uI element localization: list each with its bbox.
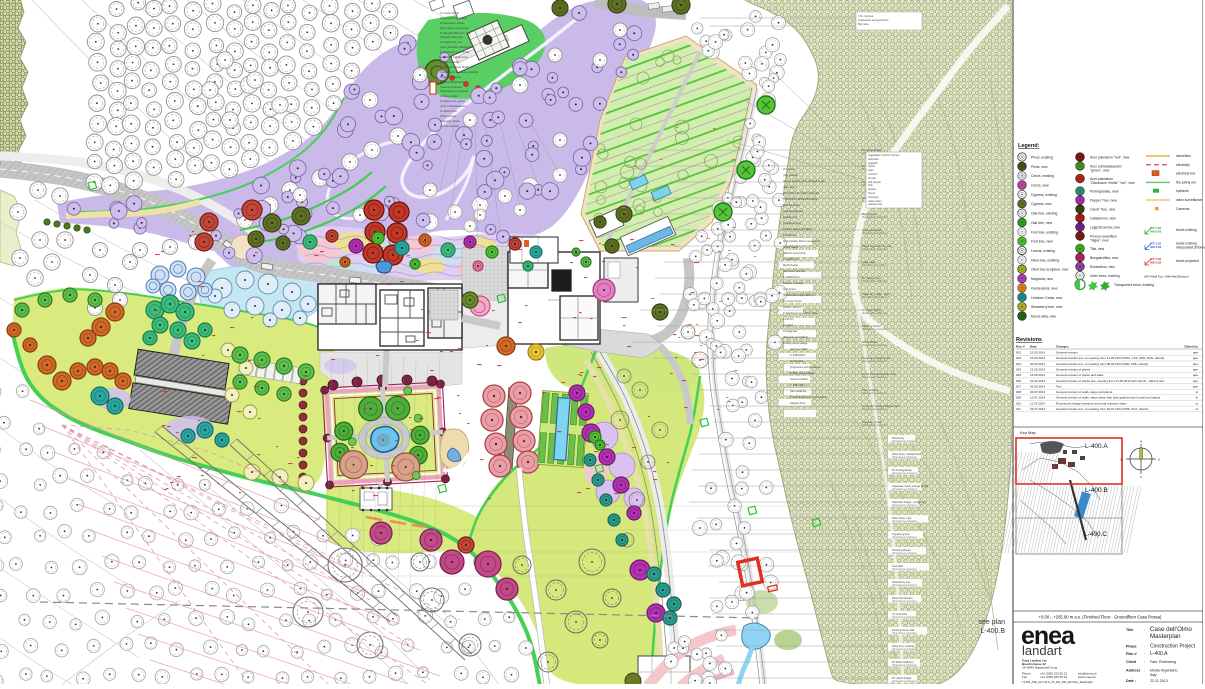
svg-text:(Myrtus communis): (Myrtus communis): [783, 269, 805, 273]
svg-text:General revision of walls, ste: General revision of walls, steps and pla…: [1056, 390, 1113, 394]
svg-text:(Rosmarinus prostratus): (Rosmarinus prostratus): [892, 472, 917, 475]
svg-text:ape: ape: [1193, 379, 1198, 383]
svg-text:electric position to be decide: electric position to be decided or site: [783, 179, 826, 183]
svg-text:3x Cypress: 3x Cypress: [790, 359, 804, 363]
svg-text:Cypress group: Cypress group: [892, 532, 910, 536]
svg-text:General revision acc. to meeti: General revision acc. to meeting from 08…: [1056, 362, 1148, 366]
svg-text::: :: [1144, 645, 1145, 649]
svg-text:(Rosmarinus prostratus): (Rosmarinus prostratus): [892, 632, 917, 635]
svg-text:12.07.2014: 12.07.2014: [1030, 396, 1045, 400]
svg-text:Carob Tree, new: Carob Tree, new: [1090, 208, 1116, 212]
svg-text::: :: [1144, 669, 1145, 673]
svg-text:4x Cork Oak: 4x Cork Oak: [892, 612, 908, 616]
svg-text:General revision acc. to meeti: General revision acc. to meeting from 20…: [1056, 407, 1148, 411]
svg-text:parsley: parsley: [868, 187, 877, 191]
svg-text:h: 460/100cm: h: 460/100cm: [790, 383, 806, 387]
svg-text:(Rosmarinus prostratus): (Rosmarinus prostratus): [892, 616, 917, 619]
svg-text:Hachiya Grape perinated: Hachiya Grape perinated: [783, 227, 812, 231]
svg-text:General revision of plants: General revision of plants: [1056, 367, 1091, 371]
svg-text:Tilia, new: Tilia, new: [1090, 247, 1105, 251]
svg-text:Complement of existing plantin: Complement of existing planting:: [440, 70, 479, 74]
svg-text:L-400.A: L-400.A: [1150, 651, 1168, 657]
svg-text:Myrtle hedge: Myrtle hedge: [783, 263, 799, 267]
svg-text:Acer palmatum "red", new: Acer palmatum "red", new: [1090, 156, 1130, 160]
svg-text:Olive trees, new: Olive trees, new: [892, 516, 911, 520]
svg-text:007: 007: [1016, 384, 1021, 388]
svg-text:Enkianthus, new: Enkianthus, new: [1090, 265, 1115, 269]
svg-text:(Acer palmatum dissectum): (Acer palmatum dissectum): [440, 45, 473, 49]
svg-text:electrical box: electrical box: [1176, 172, 1196, 176]
svg-text:Oak tree, existing: Oak tree, existing: [1031, 212, 1057, 216]
svg-text:Pistacia angustifolium: Pistacia angustifolium: [440, 80, 467, 84]
svg-text:h: 100/120 cm: h: 100/120 cm: [783, 275, 799, 279]
svg-text:008: 008: [1016, 390, 1021, 394]
svg-text:(Rosmarinus prostratus): (Rosmarinus prostratus): [892, 680, 917, 683]
svg-text:a 120 cm: a 120 cm: [783, 317, 794, 321]
svg-text:Magnolia, new: Magnolia, new: [1031, 277, 1053, 281]
svg-text:General revision acc. to meeti: General revision acc. to meeting from 14…: [1056, 356, 1164, 360]
svg-text:Lebanon Cedar, new: Lebanon Cedar, new: [1031, 296, 1063, 300]
svg-text:in Sandstone pot with ornamen: in Sandstone pot with ornamen: [783, 311, 819, 315]
svg-text:electricity: electricity: [1176, 163, 1190, 167]
svg-text:WB 0.82: WB 0.82: [1150, 261, 1162, 265]
svg-text:Edited by: Edited by: [1184, 345, 1198, 349]
svg-text:(Rosmarinus prostratus): (Rosmarinus prostratus): [892, 648, 917, 651]
svg-text:W: W: [1120, 458, 1123, 462]
svg-text:5x Bay Laurel Hedge: 5x Bay Laurel Hedge: [790, 371, 815, 375]
svg-text:15.03.2014: 15.03.2014: [1030, 351, 1045, 355]
svg-text:in sandstone pots 60x60: in sandstone pots 60x60: [440, 65, 470, 69]
svg-text:(Rosmarinus prostratus): (Rosmarinus prostratus): [862, 296, 887, 299]
svg-text:Legend:: Legend:: [1018, 143, 1040, 149]
svg-text:Hachiya grape: Hachiya grape: [783, 203, 800, 207]
svg-text:see plan: see plan: [979, 619, 1006, 626]
svg-text:h: 460/100cm: h: 460/100cm: [790, 353, 806, 357]
svg-text:fennel: fennel: [868, 164, 875, 168]
svg-text:2x Zucchini on bamboo pergola: 2x Zucchini on bamboo pergola: [783, 191, 820, 195]
svg-text:levels projected: levels projected: [1176, 259, 1199, 263]
svg-text:interpolated (informative): interpolated (informative): [1176, 245, 1205, 249]
svg-text::: :: [1144, 652, 1145, 656]
svg-text:3x Cypress: 3x Cypress: [783, 287, 797, 291]
svg-text:22.11.2013: 22.11.2013: [1150, 679, 1168, 683]
svg-text:(Rosmarinus prostratus): (Rosmarinus prostratus): [892, 664, 917, 667]
svg-text:passion fruit: passion fruit: [868, 202, 882, 206]
svg-text:06.07.2014: 06.07.2014: [1030, 390, 1045, 394]
svg-text:15.06.2014: 15.06.2014: [1030, 373, 1045, 377]
svg-text:003: 003: [1016, 362, 1021, 366]
svg-text:Title: Title: [1126, 628, 1133, 632]
svg-text:Olive tree, existing: Olive tree, existing: [1031, 258, 1059, 262]
svg-text:tomato: tomato: [868, 176, 876, 180]
svg-text:Perennial flowers: Perennial flowers: [862, 228, 883, 232]
svg-text:ape: ape: [1193, 384, 1198, 388]
svg-text:Hapless Fruit: Hapless Fruit: [790, 401, 806, 405]
svg-text:(Rosmarinus prostratus): (Rosmarinus prostratus): [862, 376, 887, 379]
svg-text:(Rosmarinus prostratus): (Rosmarinus prostratus): [862, 392, 887, 395]
svg-text:Pomegranate, new: Pomegranate, new: [1090, 190, 1119, 194]
svg-text:Date: Date: [1030, 345, 1037, 349]
svg-text:Transported trees, existing: Transported trees, existing: [1114, 283, 1154, 287]
svg-text:Pinus, new: Pinus, new: [1031, 165, 1048, 169]
svg-text:(Citrus sinensis): (Citrus sinensis): [440, 60, 459, 64]
svg-text:General revision of walls, ste: General revision of walls, steps (aera v…: [1056, 396, 1161, 400]
svg-text:23.07.2014: 23.07.2014: [1030, 407, 1045, 411]
svg-text:Phase: Phase: [1126, 645, 1137, 649]
svg-text:N: N: [1140, 440, 1142, 444]
svg-text:h: 160/120 cm: h: 160/120 cm: [783, 257, 799, 261]
svg-text:Pistacia lentiscus: Pistacia lentiscus: [440, 75, 461, 79]
svg-text:L-400.B: L-400.B: [980, 628, 1005, 635]
svg-text:(Rosmarinus prostratus): (Rosmarinus prostratus): [862, 312, 887, 315]
svg-text:WB 0.82: WB 0.82: [1150, 245, 1162, 249]
svg-text:Olive trees, transplanted: Olive trees, transplanted: [892, 452, 922, 456]
svg-text:Bougainvillea, new: Bougainvillea, new: [1090, 256, 1119, 260]
svg-text:5x Crape Myrtle: 5x Crape Myrtle: [862, 308, 881, 312]
svg-text:(Rosmarinus prostratus): (Rosmarinus prostratus): [862, 216, 887, 219]
svg-text:26.06.2014: 26.06.2014: [1030, 384, 1045, 388]
svg-text:ape: ape: [1193, 356, 1198, 360]
svg-text:011: 011: [1016, 407, 1021, 411]
svg-text:(Vitis lanuginosa): (Vitis lanuginosa): [783, 209, 803, 213]
svg-text:4x Lemon Trees: 4x Lemon Trees: [783, 299, 802, 303]
svg-text:(Laurus nobilis): (Laurus nobilis): [790, 347, 808, 351]
svg-text:Pinus, existing: Pinus, existing: [1031, 156, 1053, 160]
svg-text:002: 002: [1016, 356, 1021, 360]
svg-text:(Citrus x limon): (Citrus x limon): [783, 305, 801, 309]
svg-text:Oak tree, new: Oak tree, new: [1031, 221, 1053, 225]
svg-text:Morris hedge: Morris hedge: [783, 245, 799, 249]
svg-text:(Passiflora spp): (Passiflora spp): [783, 221, 801, 225]
svg-text:0.60x2.60m, about 240 height: 0.60x2.60m, about 240 height: [783, 197, 818, 201]
svg-text:water layer: water layer: [783, 185, 796, 189]
svg-text:Wisteria Tunnel: Wisteria Tunnel: [862, 324, 881, 328]
svg-text:chili: chili: [868, 183, 873, 187]
svg-text:Arbutus unedo: Arbutus unedo: [440, 94, 458, 98]
svg-text:hydrants: hydrants: [1176, 189, 1189, 193]
svg-text:2x Maple tree, red: 2x Maple tree, red: [440, 40, 462, 44]
svg-text:4x Crape Myrtle: 4x Crape Myrtle: [440, 11, 459, 15]
svg-text:4x Rosemary stands: 4x Rosemary stands: [440, 21, 465, 25]
svg-text:"Dissectum Viridis" "red", new: "Dissectum Viridis" "red", new: [1090, 181, 1135, 185]
svg-text:(Lagerstroemia indica): (Lagerstroemia indica): [440, 16, 467, 20]
svg-text:Callistemon, new: Callistemon, new: [1090, 217, 1116, 221]
svg-text:Shrub Roses: Shrub Roses: [862, 340, 878, 344]
svg-text:5x White Mulberry: 5x White Mulberry: [892, 660, 914, 664]
svg-text:st: st: [1196, 390, 1199, 394]
svg-text:(Rosmarinus prostratus): (Rosmarinus prostratus): [892, 440, 917, 443]
svg-text:(Cupressus sempervirens): (Cupressus sempervirens): [790, 365, 821, 369]
svg-text:L-400.A: L-400.A: [1085, 443, 1108, 450]
svg-text:5x Laurel hedge: 5x Laurel hedge: [862, 148, 882, 152]
svg-text:21.03.2014: 21.03.2014: [1030, 356, 1045, 360]
svg-text:Climbing Roses: Climbing Roses: [892, 548, 911, 552]
svg-text:rosemary: rosemary: [868, 195, 880, 199]
svg-text:5x Bay Laurel Hedge: 5x Bay Laurel Hedge: [783, 341, 808, 345]
svg-text:other trees, existing: other trees, existing: [1090, 274, 1120, 278]
svg-text:separated orange trees: separated orange trees: [440, 55, 468, 59]
svg-text:basil: basil: [868, 168, 874, 172]
svg-text:6x Bougainvillea mix, red: 6x Bougainvillea mix, red: [440, 31, 470, 35]
svg-text:(Rosmarinus prostratus): (Rosmarinus prostratus): [892, 504, 917, 507]
svg-text:Masterplan: Masterplan: [1150, 633, 1181, 640]
svg-text:st: st: [1196, 396, 1199, 400]
svg-text:(Pinus pinea): (Pinus pinea): [440, 114, 456, 118]
svg-text:Cypress, new: Cypress, new: [1031, 202, 1052, 206]
svg-text:Fax: Fax: [1022, 675, 1028, 679]
svg-text:2x old Peruvian Pepper Tree: 2x old Peruvian Pepper Tree: [862, 372, 897, 376]
svg-text:Fruit tree, new: Fruit tree, new: [1031, 240, 1053, 244]
svg-text:Changes: Changes: [1056, 345, 1069, 349]
svg-text:(Rosmarinus prostratus): (Rosmarinus prostratus): [862, 280, 887, 283]
svg-text:Lavender: Lavender: [892, 564, 903, 568]
svg-text:(Rosmarinus prostratus): (Rosmarinus prostratus): [862, 264, 887, 267]
svg-text:(Rosmarinus prostratus): (Rosmarinus prostratus): [892, 584, 917, 587]
svg-text:Date :: Date :: [1126, 679, 1136, 683]
svg-text:(Rosmarinus prostratus): (Rosmarinus prostratus): [862, 328, 887, 331]
svg-text:artichoke: artichoke: [868, 157, 879, 161]
svg-text:Cypress, existing: Cypress, existing: [1031, 193, 1057, 197]
svg-text:General revision of plants and: General revision of plants and walls: [1056, 373, 1104, 377]
svg-text:levels existing: levels existing: [1176, 228, 1197, 232]
svg-text:Pots, existing: Pots, existing: [862, 388, 878, 392]
svg-text:Revisions: Revisions: [1016, 337, 1042, 343]
svg-text:WB 0.82: WB 0.82: [1150, 230, 1162, 234]
svg-text:L-400.B: L-400.B: [1085, 487, 1108, 494]
svg-text:(Rosmarinus prostratus): (Rosmarinus prostratus): [862, 248, 887, 251]
svg-text:Japanese mock-orange hedge: Japanese mock-orange hedge: [892, 484, 929, 488]
svg-text:(Rosmarinus prostratus): (Rosmarinus prostratus): [440, 26, 469, 30]
svg-text:Cercis, new: Cercis, new: [1031, 184, 1049, 188]
svg-text:"Nigra", new: "Nigra", new: [1090, 238, 1109, 242]
svg-text:Cameras: Cameras: [1176, 207, 1190, 211]
svg-text:11.07.2014: 11.07.2014: [1030, 401, 1045, 405]
svg-text:Existing stone wall: Existing stone wall: [892, 628, 915, 632]
svg-text:4x Magnolia: 4x Magnolia: [783, 329, 798, 333]
svg-text:in sandstone pots 60x60: in sandstone pots 60x60: [440, 50, 470, 54]
svg-text:009: 009: [1016, 396, 1021, 400]
svg-text:Text: Text: [1056, 384, 1062, 388]
svg-text:"green", new: "green", new: [1090, 168, 1110, 172]
svg-text:Laurus, existing: Laurus, existing: [1031, 249, 1055, 253]
svg-text:Olive tree sculpture, new: Olive tree sculpture, new: [1031, 268, 1069, 272]
svg-text:Pepper Tree, new: Pepper Tree, new: [1090, 199, 1117, 203]
svg-text:Key Map: Key Map: [1020, 430, 1037, 435]
svg-text:(Rosmarinus prostratus): (Rosmarinus prostratus): [892, 520, 917, 523]
svg-text:005: 005: [1016, 373, 1021, 377]
svg-text:(Acer schirasawanum): (Acer schirasawanum): [440, 104, 467, 108]
svg-text:demolition: demolition: [1176, 154, 1191, 158]
svg-text:Construction Project: Construction Project: [1150, 644, 1196, 650]
svg-text::: :: [1144, 660, 1145, 664]
svg-text:Strawberry tree: Strawberry tree: [892, 580, 911, 584]
svg-text:Roomwork change entrance area: Roomwork change entrance area and entran…: [1056, 401, 1127, 405]
svg-text:E: E: [1158, 458, 1160, 462]
svg-text:Pergola - portego: Pergola - portego: [783, 281, 804, 285]
svg-text:Fruit tree, existing: Fruit tree, existing: [1031, 230, 1058, 234]
svg-text:Oleander - bush: Oleander - bush: [862, 420, 882, 424]
svg-text:Rosemary: Rosemary: [892, 436, 905, 440]
svg-text:+41 (0)55 225 55 13: +41 (0)55 225 55 13: [1040, 675, 1067, 679]
svg-text:(Vitis beriata, Album canescen: (Vitis beriata, Album canescens): [783, 239, 820, 243]
svg-text:(Rosmarinus prostratus): (Rosmarinus prostratus): [892, 536, 917, 539]
svg-text:(Rosmarinus prostratus): (Rosmarinus prostratus): [892, 456, 917, 459]
svg-text:Italy: Italy: [1150, 673, 1157, 677]
svg-text:21.05.2014: 21.05.2014: [1030, 367, 1045, 371]
svg-text:06.04.2014: 06.04.2014: [1030, 362, 1045, 366]
svg-text:Teucrium fruticans: Teucrium fruticans: [440, 85, 462, 89]
svg-text:4x grand: 4x grand: [783, 323, 794, 327]
svg-text:01.06.2014: 01.06.2014: [1030, 379, 1045, 383]
svg-text:Nan Gardenia: Nan Gardenia: [790, 389, 807, 393]
svg-text::: :: [1144, 628, 1145, 632]
svg-text:(WT=Wall Top / WB=Wall Bottom): (WT=Wall Top / WB=Wall Bottom): [1144, 275, 1189, 279]
svg-text:L-400.C: L-400.C: [1084, 531, 1107, 538]
svg-text:Morus alba, new: Morus alba, new: [1031, 314, 1056, 318]
svg-text:(Liriope spicata): (Liriope spicata): [440, 124, 459, 128]
svg-text:Heping Fruit: Heping Fruit: [862, 212, 877, 216]
svg-text:(Rosmarinus prostratus): (Rosmarinus prostratus): [892, 568, 917, 571]
svg-text:ape: ape: [1193, 351, 1198, 355]
svg-text:(Morrius communis): (Morrius communis): [783, 251, 806, 255]
svg-text:(Rosmarinus prostratus): (Rosmarinus prostratus): [862, 408, 887, 411]
svg-text:+0.00↔+265.00 m.a.s. (Finished: +0.00↔+265.00 m.a.s. (Finished Floor - G…: [1039, 615, 1162, 620]
svg-text:4x Maple tree, green: 4x Maple tree, green: [440, 99, 465, 103]
svg-text:ape: ape: [1193, 362, 1198, 366]
svg-text:5x Pomegranate: 5x Pomegranate: [892, 468, 912, 472]
svg-text:2x Loquat: 2x Loquat: [783, 167, 795, 171]
svg-text:(Rosmarinus prostratus): (Rosmarinus prostratus): [862, 424, 887, 427]
svg-text:Rosemary hanging wall: Rosemary hanging wall: [862, 356, 890, 360]
svg-text:Koelreuteria, new: Koelreuteria, new: [1031, 286, 1058, 290]
svg-text:fire safety net: fire safety net: [1176, 180, 1196, 184]
svg-text:www.enea.ch: www.enea.ch: [1078, 675, 1096, 679]
svg-text:S: S: [1140, 475, 1142, 479]
svg-text:73-400_ASE_04.A.02.A_XX_001_40: 73-400_ASE_04.A.02.A_XX_001_400_dell-Olm…: [1022, 680, 1093, 684]
svg-text:ape: ape: [1193, 373, 1198, 377]
svg-text:(Rosmarinus prostratus): (Rosmarinus prostratus): [862, 344, 887, 347]
svg-text:Rhaphiolepis umbellata: Rhaphiolepis umbellata: [440, 89, 468, 93]
svg-text:Hawaii Fruit: Hawaii Fruit: [783, 215, 797, 219]
svg-text:Address: Address: [1126, 669, 1140, 673]
svg-text:(Rosmarinus prostratus): (Rosmarinus prostratus): [892, 552, 917, 555]
svg-text:Perennial flowers: Perennial flowers: [892, 596, 913, 600]
svg-text:5x Laurel hedge: 5x Laurel hedge: [892, 676, 912, 680]
svg-text:Fam. Rotenberg: Fam. Rotenberg: [1150, 660, 1176, 664]
svg-text:with Album: with Album: [783, 233, 796, 237]
svg-text:Lagerstroemia, new: Lagerstroemia, new: [1090, 226, 1120, 230]
svg-text:Strawberry tree, new: Strawberry tree, new: [1031, 305, 1063, 309]
svg-text:Cercis, existing: Cercis, existing: [1031, 174, 1054, 178]
svg-text:Water layer with city wall: Water layer with city wall: [862, 244, 892, 248]
svg-text:Rev. #: Rev. #: [1016, 345, 1025, 349]
svg-text:(Cupressus sempervirens): (Cupressus sempervirens): [858, 18, 889, 22]
svg-text:st: st: [1196, 407, 1199, 411]
svg-text:5x Orange Tree: 5x Orange Tree: [862, 276, 881, 280]
svg-text:(Rosmarinus prostratus): (Rosmarinus prostratus): [892, 488, 917, 491]
svg-text:Oleander - white - bush: Oleander - white - bush: [862, 292, 890, 296]
svg-text:ape: ape: [1193, 367, 1198, 371]
svg-text:landart: landart: [1022, 643, 1062, 658]
svg-text:CH-8645 Rapperswil-Jona: CH-8645 Rapperswil-Jona: [1022, 666, 1058, 670]
svg-text:Case dell’Olmo: Case dell’Olmo: [1150, 626, 1193, 633]
svg-text:4x Stone Pine: 4x Stone Pine: [440, 109, 457, 113]
svg-text:Creeping Liriope: Creeping Liriope: [440, 119, 460, 123]
svg-text:zucchini: zucchini: [868, 172, 878, 176]
svg-text:Client: Client: [1126, 660, 1137, 664]
svg-text:(Rosmarinus prostratus): (Rosmarinus prostratus): [862, 232, 887, 235]
svg-text:(City portals): (City portals): [783, 173, 798, 177]
svg-text:1.5x Cypress: 1.5x Cypress: [858, 14, 874, 18]
svg-text:5x young Peruvian Pepper Tree: 5x young Peruvian Pepper Tree: [862, 404, 900, 408]
svg-text:video surveillance: video surveillance: [1176, 198, 1202, 202]
svg-text:(Trachelospermum jasminoides): (Trachelospermum jasminoides): [790, 395, 827, 399]
svg-text:Plan #: Plan #: [1126, 652, 1137, 656]
svg-text:006: 006: [1016, 379, 1021, 383]
svg-text:(Rosmarinus prostratus): (Rosmarinus prostratus): [862, 360, 887, 363]
svg-text:st: st: [1196, 401, 1199, 405]
svg-text:Big mass: Big mass: [858, 22, 869, 26]
svg-text:water basin: water basin: [862, 260, 876, 264]
svg-text:(Laurus nobilis): (Laurus nobilis): [790, 377, 808, 381]
svg-text:General revision: General revision: [1056, 351, 1078, 355]
svg-text:thyme: thyme: [868, 191, 876, 195]
svg-text:(Rosmarinus prostratus): (Rosmarinus prostratus): [892, 600, 917, 603]
svg-text:(Magnolia grandiflora): (Magnolia grandiflora): [783, 335, 808, 339]
svg-text:Olive tree, existing: Olive tree, existing: [892, 644, 915, 648]
svg-text:(Cupressus sempervirens): (Cupressus sempervirens): [783, 293, 814, 297]
svg-text:Monte Argentario: Monte Argentario: [1150, 669, 1177, 673]
svg-text:General revision of plants acc: General revision of plants acc. meeting …: [1056, 379, 1164, 383]
svg-text:vegetables / herbs / berries:: vegetables / herbs / berries:: [868, 153, 900, 157]
svg-text:004: 004: [1016, 367, 1021, 371]
svg-text:(Bougainvillea spp): (Bougainvillea spp): [440, 35, 463, 39]
svg-text:001: 001: [1016, 351, 1021, 355]
svg-text:Oleander hedge - temporary: Oleander hedge - temporary: [892, 500, 926, 504]
svg-text:010: 010: [1016, 401, 1021, 405]
